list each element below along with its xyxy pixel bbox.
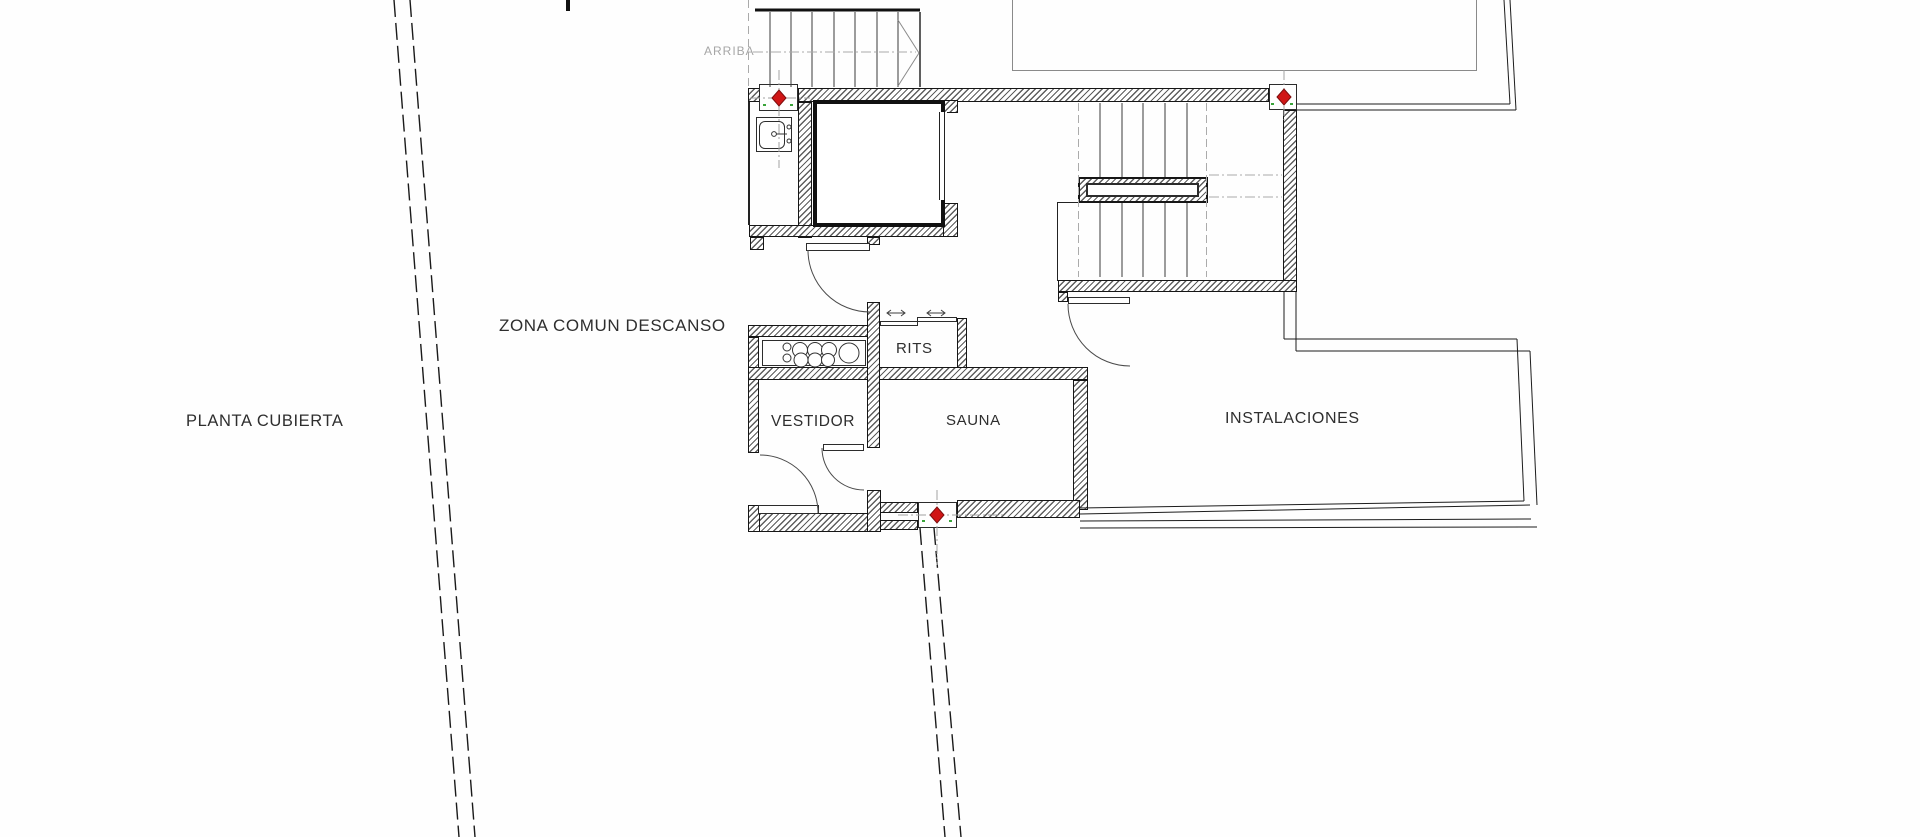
wall-segment [943, 203, 958, 237]
stair-handrail-inner [1086, 183, 1199, 197]
level-marker-box [759, 84, 798, 111]
sliding-door-track [880, 321, 918, 326]
wall-segment [748, 325, 880, 337]
stairwell-edge-line [1057, 202, 1058, 281]
sliding-door-track [917, 317, 957, 322]
roof-edge-line [1080, 0, 1537, 528]
sink-basin [759, 121, 785, 149]
stair-direction-arrow [898, 20, 919, 86]
wall-segment [748, 337, 759, 453]
wall-segment [1283, 110, 1297, 292]
room-label-instalaciones: INSTALACIONES [1225, 411, 1360, 427]
label-arriba: ARRIBA [704, 45, 755, 57]
elevator-door-line [944, 112, 945, 200]
room-label-sauna: SAUNA [946, 413, 1001, 428]
wall-segment [748, 367, 1088, 380]
door-leaf [1068, 297, 1130, 304]
label-planta-cubierta: PLANTA CUBIERTA [186, 413, 344, 430]
room-label-vestidor: VESTIDOR [771, 414, 855, 430]
door-leaf [823, 444, 864, 451]
wall-segment [1073, 380, 1088, 510]
label-zona-comun-descanso: ZONA COMUN DESCANSO [499, 317, 726, 334]
wall-segment [750, 237, 764, 250]
wall-segment [867, 302, 880, 448]
door-leaf [758, 505, 819, 514]
stairwell-edge-line [1057, 202, 1079, 203]
level-marker-box [918, 502, 957, 528]
elevator-shaft [813, 100, 945, 227]
level-marker-box [1269, 84, 1297, 110]
sliding-door-arrow [887, 310, 945, 316]
wall-segment [1058, 280, 1297, 292]
wall-segment [957, 500, 1080, 518]
floor-plan-canvas: PLANTA CUBIERTA ZONA COMUN DESCANSO ARRI… [0, 0, 1920, 837]
wall-segment [748, 513, 868, 532]
wall-segment [880, 502, 918, 513]
wall-segment [880, 520, 918, 530]
wall-segment [957, 318, 967, 368]
door-leaf [806, 243, 870, 251]
closet-edge-line [748, 102, 750, 225]
wall-segment [867, 490, 881, 532]
room-label-rits: RITS [896, 341, 933, 356]
wall-segment [1058, 292, 1068, 302]
storage-closet-outline [762, 340, 866, 366]
elevator-door-opening [939, 112, 947, 200]
roof-outline-rectangle [1012, 0, 1477, 71]
elevator-door-line [939, 112, 940, 200]
wall-segment [798, 102, 812, 238]
